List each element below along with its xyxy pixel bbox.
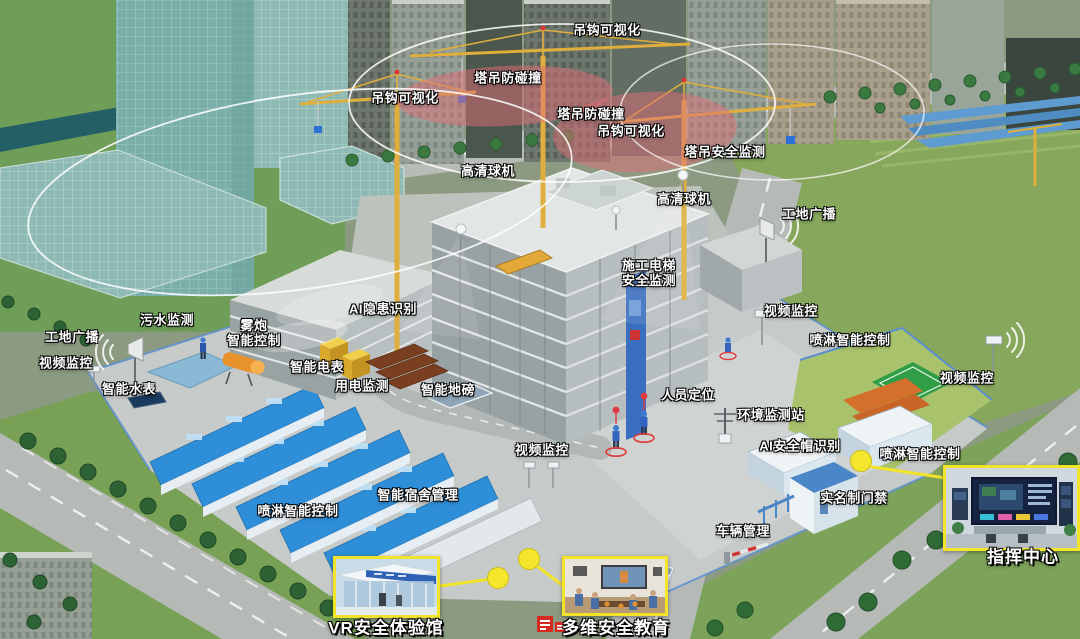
vr-experience-hall-caption: VR安全体验馆 bbox=[328, 614, 444, 639]
command-center-photo bbox=[943, 465, 1080, 551]
education-photo-art bbox=[565, 559, 665, 613]
callout-dot-vr bbox=[488, 568, 509, 589]
safety-education-caption: 多维安全教育 bbox=[562, 614, 670, 639]
smart-construction-site-diagram: VR安全体验馆 多维安全教育 指挥中心 吊钩可视化塔吊防碰撞吊钩可视化塔吊防碰撞… bbox=[0, 0, 1080, 639]
vr-photo-art bbox=[336, 559, 437, 615]
command-center-caption: 指挥中心 bbox=[987, 543, 1059, 568]
callout-dot-command bbox=[851, 451, 872, 472]
command-photo-art bbox=[946, 468, 1077, 548]
vr-experience-hall-photo bbox=[333, 556, 440, 618]
callout-dot-education bbox=[519, 549, 540, 570]
site-3d-scene bbox=[0, 0, 1080, 639]
safety-education-photo bbox=[562, 556, 668, 616]
